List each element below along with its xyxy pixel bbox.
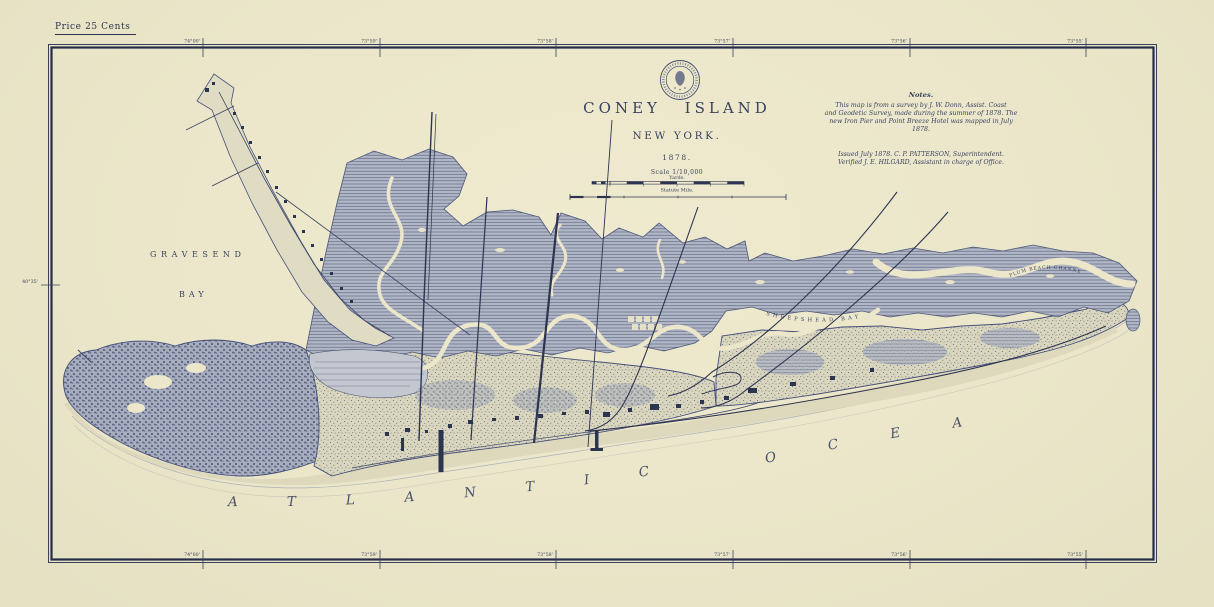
lon-label-top: 73°58' (537, 39, 553, 45)
notes-line: This map is from a survey by J. W. Donn,… (822, 102, 1020, 110)
map-title: CONEY ISLAND (583, 99, 771, 117)
small-pier (595, 430, 599, 450)
notes-block: Notes. This map is from a survey by J. W… (822, 91, 1020, 167)
iron-pier (439, 430, 444, 472)
price-label: Price 25 Cents (55, 22, 136, 35)
notes-line: and Geodetic Survey, made during the sum… (822, 110, 1020, 118)
lon-label-top: 74°00' (184, 39, 200, 45)
survey-seal-icon (661, 61, 700, 100)
map-scale-text: Scale 1/10,000 (583, 169, 771, 176)
mile-scale-label: Statute Mile. (660, 188, 693, 194)
lon-label-top: 73°57' (714, 39, 730, 45)
lon-label-top: 73°55' (1067, 39, 1083, 45)
lon-label-bottom: 73°59' (361, 552, 377, 558)
east-tip-marsh-islet (1126, 309, 1140, 331)
lon-label-bottom: 73°58' (537, 552, 553, 558)
notes-verified: Verified J. E. HILGARD, Assistant in cha… (822, 159, 1020, 167)
gravesend-label: GRAVESEND (150, 250, 246, 259)
lon-label-bottom: 73°55' (1067, 552, 1083, 558)
lat-label-left: 40°35' (22, 279, 38, 285)
map-subtitle: NEW YORK. (583, 130, 771, 142)
gravesend-bay-label: BAY (179, 290, 208, 299)
lon-label-bottom: 73°57' (714, 552, 730, 558)
lon-label-bottom: 74°00' (184, 552, 200, 558)
scale-bars: Yards. Statute Mile. (570, 175, 786, 200)
map-year: 1878. (583, 153, 771, 162)
coney-island-map-canvas: ATLANTIC OCEAN SHEEPSHEAD BAY PLUM BEACH… (0, 0, 1214, 607)
notes-heading: Notes. (822, 91, 1020, 99)
notes-issued: Issued July 1878. C. P. PATTERSON, Super… (822, 151, 1020, 159)
title-block: CONEY ISLAND NEW YORK. 1878. Scale 1/10,… (583, 99, 771, 176)
lon-label-top: 73°59' (361, 39, 377, 45)
lon-label-bottom: 73°56' (891, 552, 907, 558)
lon-label-top: 73°56' (891, 39, 907, 45)
antique-map-page: ATLANTIC OCEAN SHEEPSHEAD BAY PLUM BEACH… (0, 0, 1214, 607)
notes-line: new Iron Pier and Point Breeze Hotel was… (822, 118, 1020, 134)
